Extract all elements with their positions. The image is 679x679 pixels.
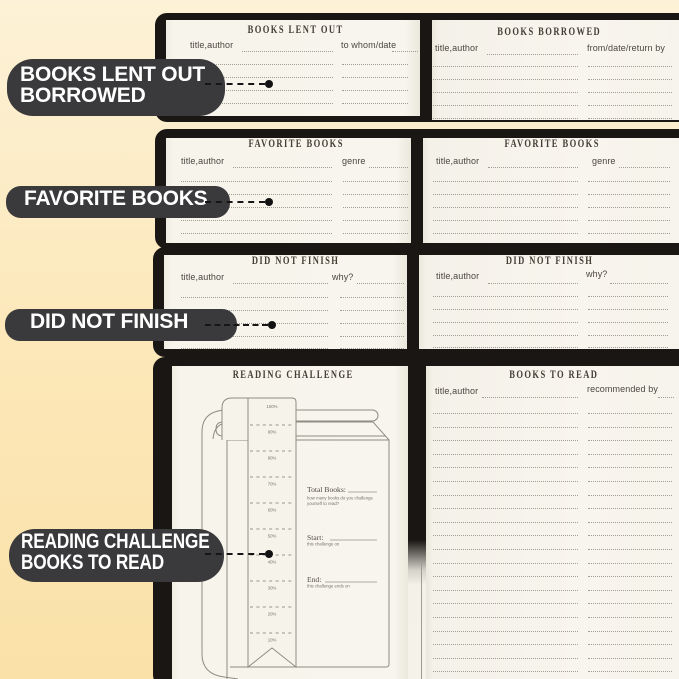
svg-text:50%: 50% [268,534,277,539]
svg-text:70%: 70% [268,482,277,487]
svg-text:10%: 10% [268,638,277,643]
svg-text:Total Books:: Total Books: [307,485,346,494]
svg-text:this challenge ends on: this challenge ends on [307,584,350,589]
svg-text:how many books do you challeng: how many books do you challenge [307,496,374,501]
svg-text:90%: 90% [268,430,277,435]
svg-text:100%: 100% [267,404,278,409]
svg-text:this challenge on: this challenge on [307,542,340,547]
svg-text:80%: 80% [268,456,277,461]
svg-text:20%: 20% [268,612,277,617]
svg-text:yourself to read?: yourself to read? [307,501,340,506]
svg-text:40%: 40% [268,560,277,565]
svg-text:60%: 60% [268,508,277,513]
svg-text:30%: 30% [268,586,277,591]
